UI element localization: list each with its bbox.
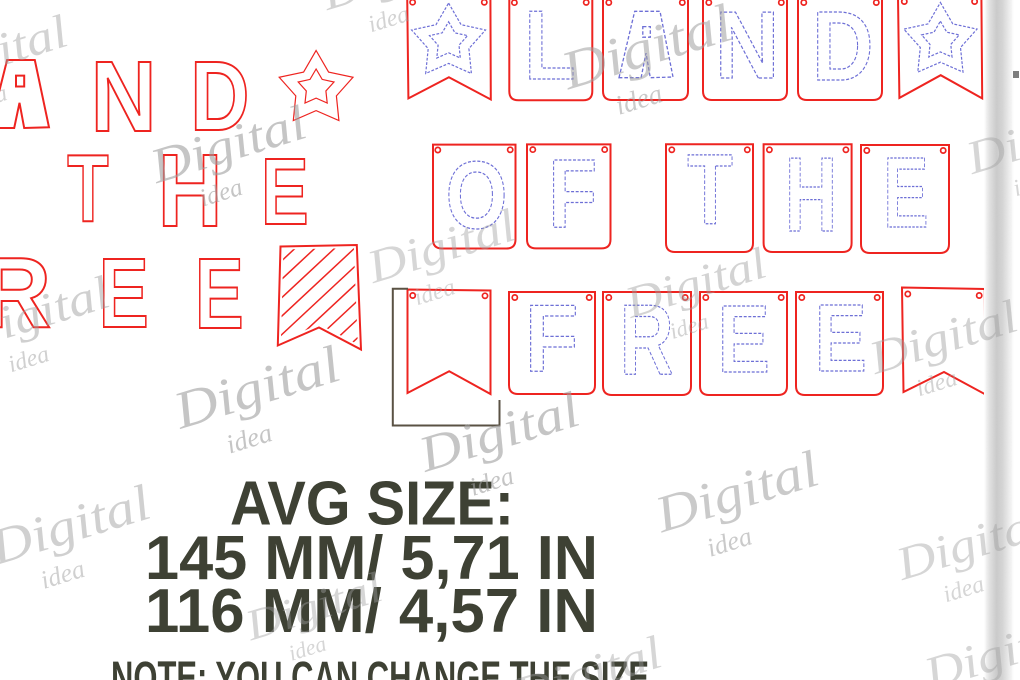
svg-text:E: E <box>718 286 770 393</box>
svg-text:E: E <box>815 285 867 392</box>
svg-text:F: F <box>548 139 597 248</box>
svg-text:H: H <box>785 136 837 254</box>
svg-text:F: F <box>525 285 579 392</box>
svg-text:T: T <box>67 135 108 242</box>
svg-text:E: E <box>195 238 244 350</box>
svg-text:T: T <box>687 134 733 246</box>
svg-text:D: D <box>812 0 874 101</box>
svg-text:E: E <box>883 137 928 249</box>
